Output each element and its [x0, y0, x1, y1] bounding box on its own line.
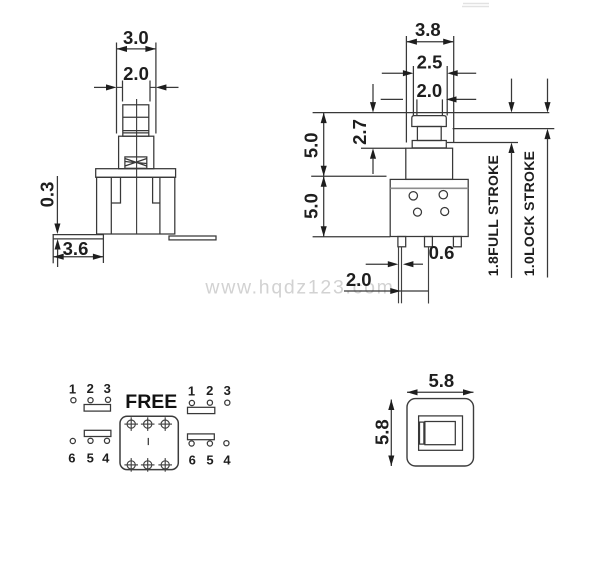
svg-text:1.0LOCK STROKE: 1.0LOCK STROKE: [521, 151, 537, 277]
svg-text:2.0: 2.0: [416, 80, 442, 101]
svg-text:3: 3: [104, 381, 111, 396]
svg-text:0.6: 0.6: [429, 242, 455, 263]
svg-text:6: 6: [68, 450, 75, 465]
svg-text:2.0: 2.0: [123, 63, 149, 84]
svg-text:2.5: 2.5: [417, 52, 443, 73]
svg-text:2.0: 2.0: [346, 269, 372, 290]
svg-text:4: 4: [102, 450, 110, 465]
svg-text:1: 1: [188, 384, 195, 399]
svg-text:3.0: 3.0: [123, 27, 149, 48]
svg-text:1.8FULL STROKE: 1.8FULL STROKE: [485, 155, 501, 276]
svg-text:5: 5: [206, 453, 213, 468]
svg-text:5.0: 5.0: [301, 193, 322, 219]
svg-text:1: 1: [69, 382, 76, 397]
svg-text:6: 6: [189, 453, 196, 468]
svg-text:5: 5: [87, 450, 94, 465]
svg-text:2.7: 2.7: [349, 119, 370, 145]
svg-text:3: 3: [224, 383, 231, 398]
svg-text:3.6: 3.6: [63, 238, 89, 259]
svg-text:0.3: 0.3: [37, 182, 58, 208]
svg-text:2: 2: [206, 383, 213, 398]
svg-text:3.8: 3.8: [415, 19, 441, 40]
svg-text:5.8: 5.8: [372, 419, 393, 445]
svg-text:2: 2: [87, 381, 94, 396]
svg-text:5.8: 5.8: [428, 370, 454, 391]
svg-text:FREE: FREE: [125, 391, 177, 413]
svg-text:4: 4: [223, 453, 231, 468]
svg-text:5.0: 5.0: [301, 132, 322, 158]
